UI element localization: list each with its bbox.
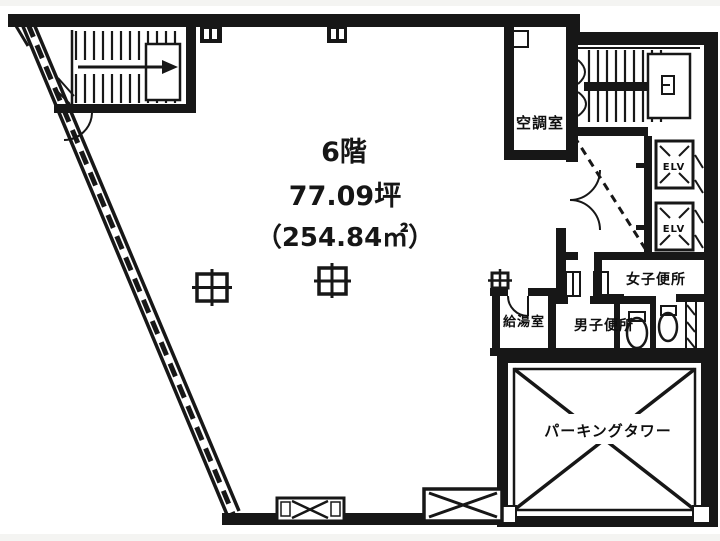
elevator-1-label: ELV (663, 162, 686, 173)
column-icon (192, 269, 232, 306)
floor-area-sqm: （254.84㎡） (256, 222, 434, 253)
floor-title: 6階 (321, 137, 367, 168)
elevator-2-label: ELV (663, 224, 686, 235)
kitchenette-label: 給湯室 (503, 314, 545, 330)
mens-toilet-label: 男子便所 (574, 317, 634, 334)
bottom-duct-2 (424, 489, 502, 521)
floor-area-tsubo: 77.09坪 (289, 181, 401, 212)
column-icon (314, 263, 351, 298)
parking-tower: パーキングタワー (497, 352, 712, 527)
parking-tower-label: パーキングタワー (544, 422, 672, 440)
ac-room-label: 空調室 (516, 114, 564, 132)
bottom-duct-1 (277, 498, 344, 521)
column-icon (488, 269, 512, 292)
womens-toilet-label: 女子便所 (626, 271, 686, 288)
floor-plan-page: 空調室 ELV (0, 0, 720, 541)
floor-plan-svg: 空調室 ELV (0, 0, 720, 541)
